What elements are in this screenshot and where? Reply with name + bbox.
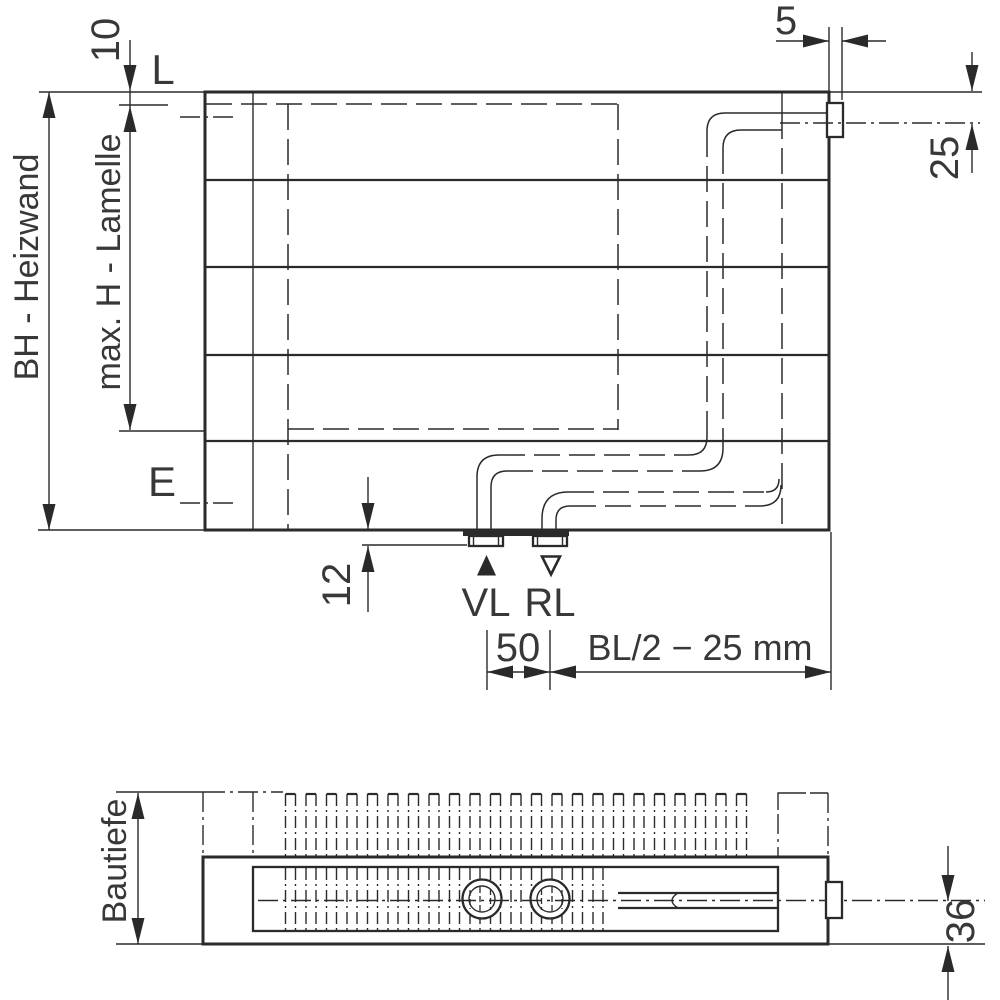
label-bautiefe: Bautiefe	[96, 799, 134, 924]
dim-25	[966, 52, 979, 173]
radiator-body-outline	[205, 92, 829, 530]
level-label-l: L	[151, 46, 174, 93]
radiator-technical-drawing: BH - Heizwand max. H - Lamelle 10 L E 12…	[0, 0, 1000, 1000]
end-bracket-corner	[778, 793, 806, 810]
convector-fins-outer	[286, 794, 747, 856]
label-vl: VL	[462, 581, 511, 625]
vent-tab	[827, 103, 843, 137]
dim-label-25: 25	[923, 136, 967, 181]
top-view: Bautiefe 36	[96, 792, 985, 1000]
label-rl: RL	[524, 581, 575, 625]
label-bh-heizwand: BH - Heizwand	[8, 154, 46, 381]
dim-label-36: 36	[939, 899, 983, 944]
label-max-h-lamelle: max. H - Lamelle	[90, 134, 128, 391]
level-label-e: E	[148, 458, 176, 505]
dim-label-5: 5	[775, 0, 797, 43]
drawing-canvas: BH - Heizwand max. H - Lamelle 10 L E 12…	[0, 0, 1000, 1000]
supply-pipe	[477, 113, 829, 530]
dim-label-10: 10	[84, 18, 128, 63]
supply-flow-icon	[477, 555, 496, 576]
return-flow-icon	[542, 557, 560, 575]
return-pipe	[542, 479, 781, 530]
inner-channel-outline	[253, 867, 778, 931]
outlet-tab	[826, 882, 842, 918]
front-view: BH - Heizwand max. H - Lamelle 10 L E 12…	[8, 0, 982, 690]
dim-label-50: 50	[496, 626, 541, 670]
dim-label-bl2: BL/2 − 25 mm	[587, 627, 812, 668]
dim-label-12: 12	[315, 563, 359, 608]
